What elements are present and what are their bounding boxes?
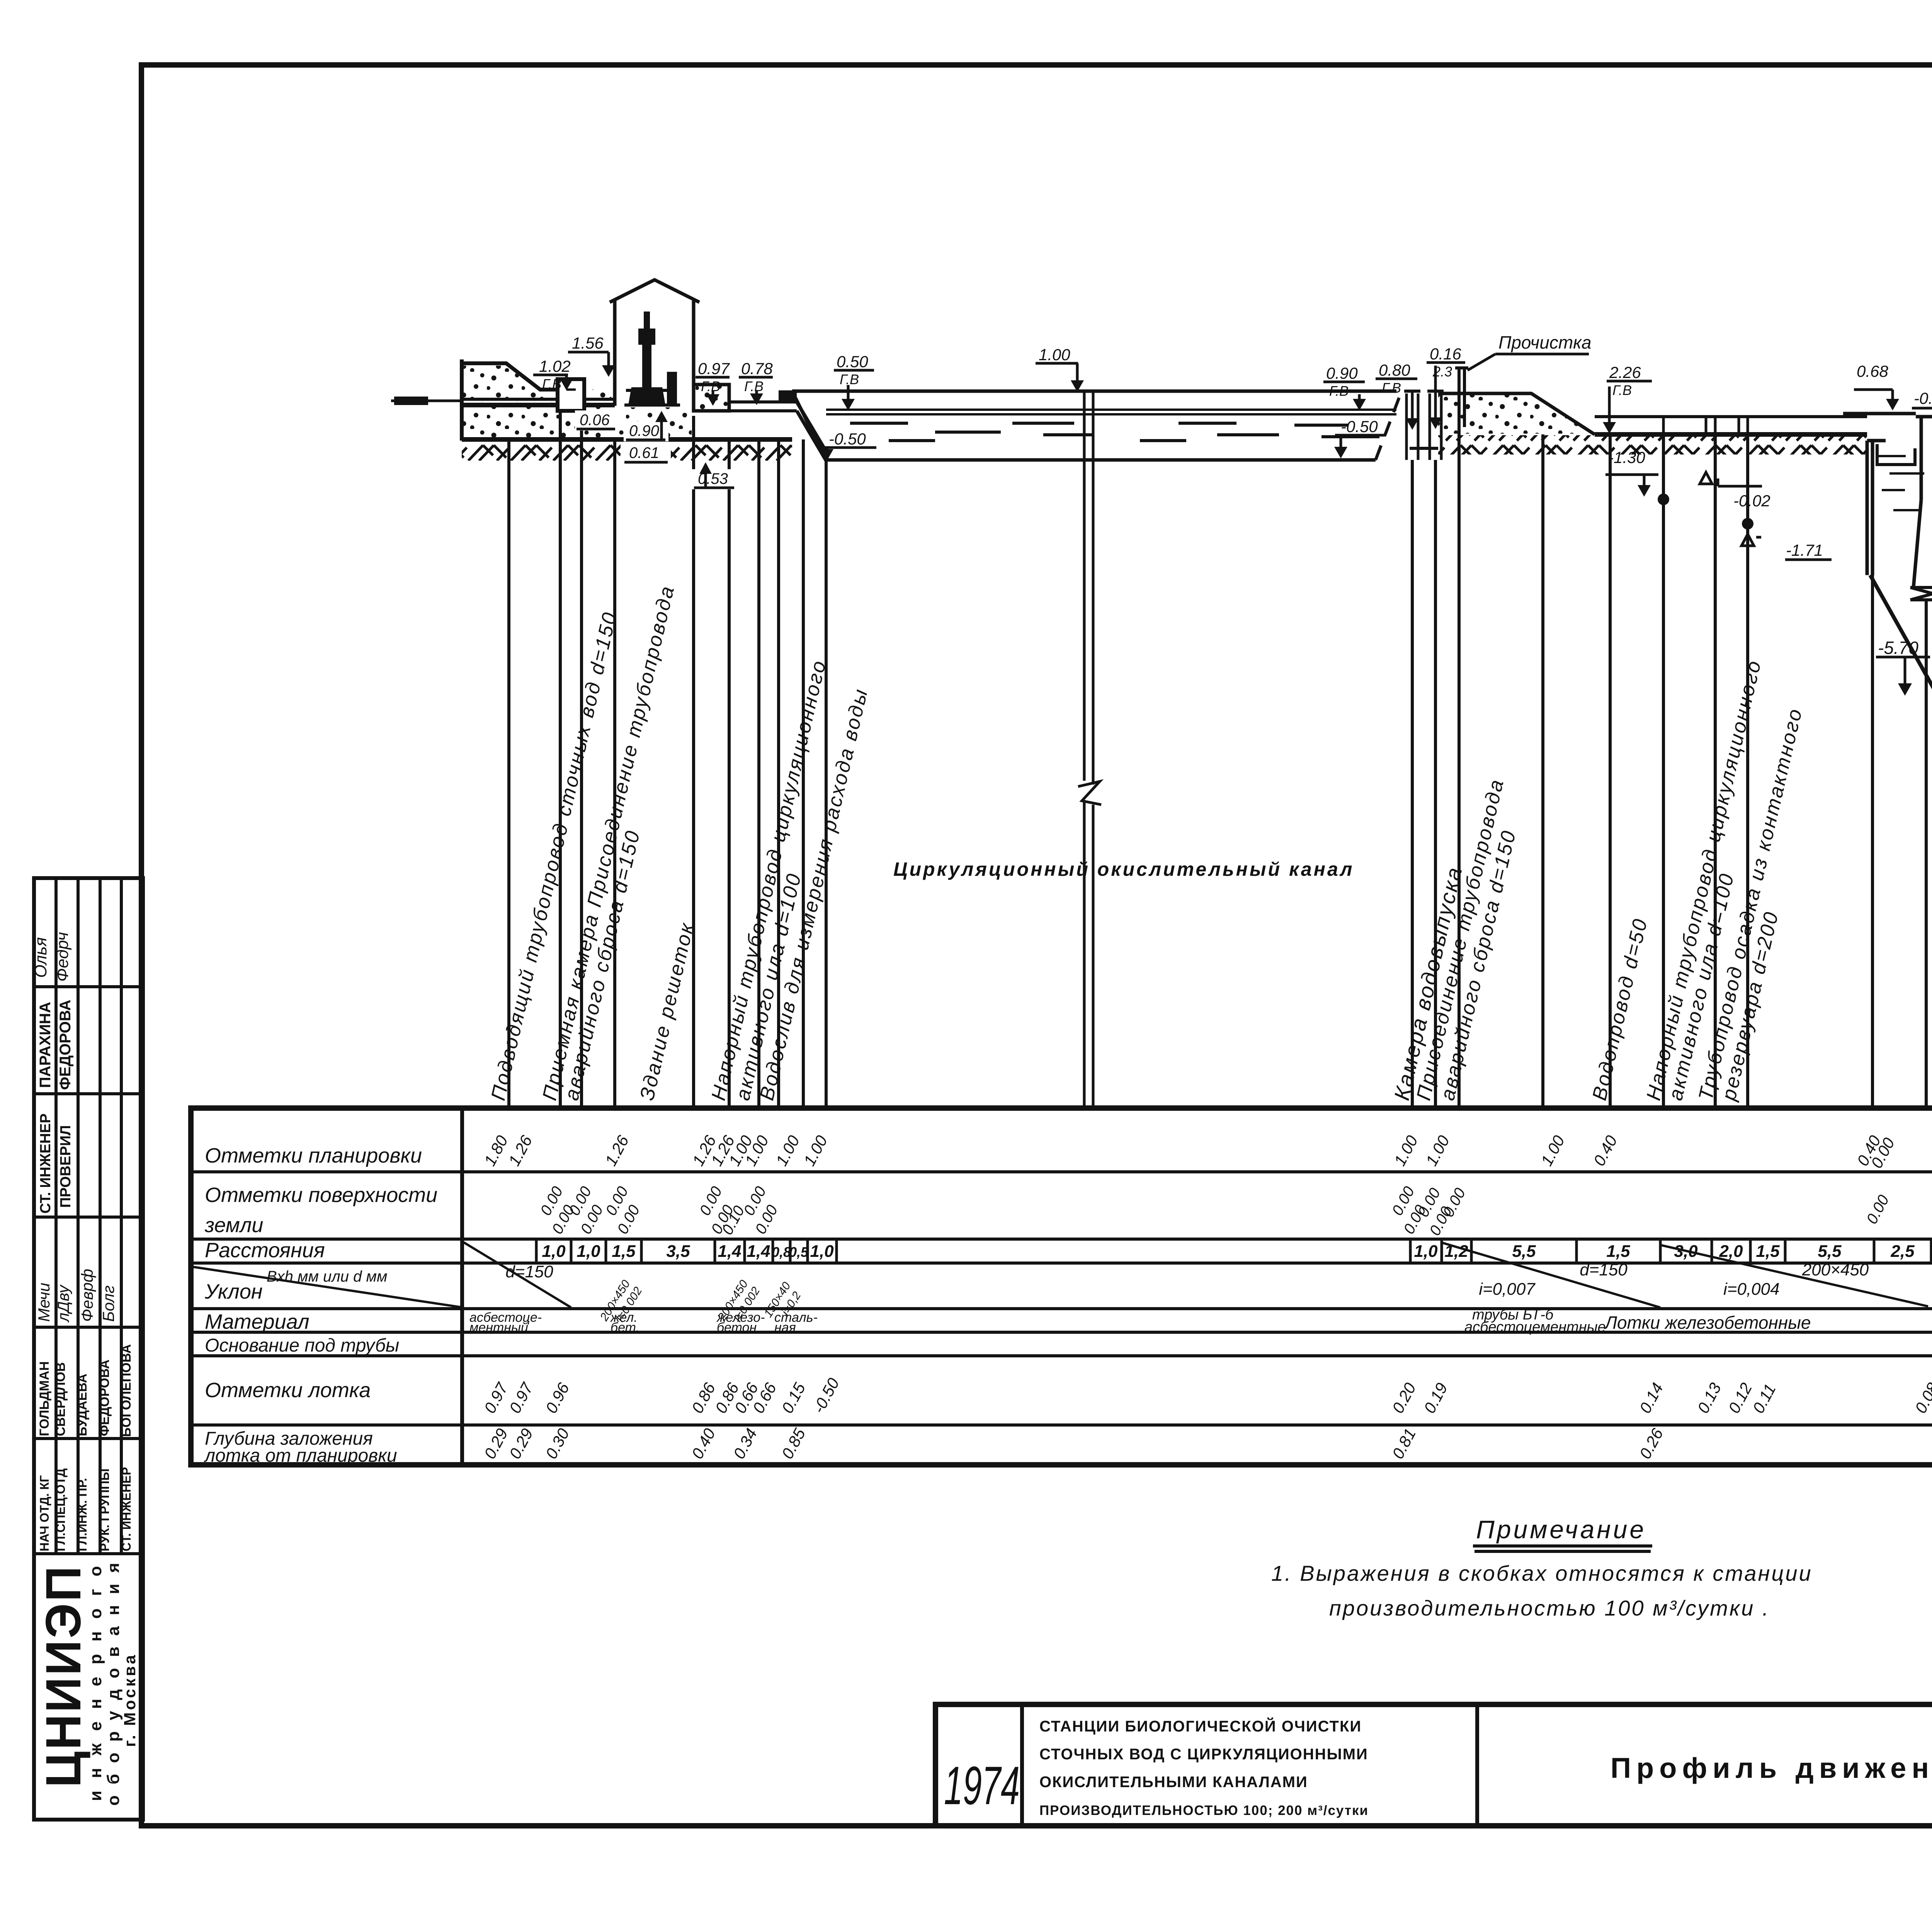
svg-text:НАЧ ОТД. КГ: НАЧ ОТД. КГ [37,1475,51,1551]
svg-text:0,5: 0,5 [789,1244,809,1260]
svg-text:1.02: 1.02 [539,357,571,375]
svg-text:0.29: 0.29 [505,1425,536,1462]
svg-text:земли: земли [204,1214,263,1237]
svg-text:-5.70: -5.70 [1878,638,1918,658]
svg-text:БОГОЛЕПОВА: БОГОЛЕПОВА [119,1344,134,1437]
svg-text:ГОЛЬДМАН: ГОЛЬДМАН [37,1361,52,1436]
svg-text:0.97: 0.97 [505,1379,537,1416]
svg-text:Отметки планировки: Отметки планировки [205,1144,422,1167]
svg-text:Федрч: Федрч [53,932,72,982]
svg-text:ФЕДОРОВА: ФЕДОРОВА [57,1000,74,1090]
svg-text:i=0,007: i=0,007 [1479,1280,1536,1299]
svg-text:Отметки лотка: Отметки лотка [205,1379,371,1402]
svg-text:1.00: 1.00 [1537,1132,1568,1169]
svg-text:d=150: d=150 [505,1262,553,1281]
svg-text:Г.В: Г.В [701,378,720,394]
svg-text:0.97: 0.97 [698,359,730,378]
svg-text:БУДАЕВА: БУДАЕВА [75,1374,90,1436]
svg-text:1.00: 1.00 [772,1132,803,1169]
svg-text:1.56: 1.56 [572,334,604,352]
svg-text:ПРОВЕРИЛ: ПРОВЕРИЛ [58,1125,74,1208]
svg-text:СТОЧНЫХ ВОД С ЦИРКУЛЯЦИОННЫ: СТОЧНЫХ ВОД С ЦИРКУЛЯЦИОННЫМИ [1039,1746,1368,1763]
svg-text:ГЛ.СПЕЦ.ОТД: ГЛ.СПЕЦ.ОТД [54,1468,68,1551]
svg-text:1.26: 1.26 [505,1132,536,1169]
svg-text:0.16: 0.16 [1430,345,1461,363]
svg-text:0.97: 0.97 [480,1379,512,1416]
svg-text:-0.50: -0.50 [829,430,866,448]
svg-text:ПРОИЗВОДИТЕЛЬНОСТЬЮ 100; 200: ПРОИЗВОДИТЕЛЬНОСТЬЮ 100; 200 м³/сутки [1039,1803,1369,1818]
svg-text:1.26: 1.26 [601,1132,632,1169]
svg-text:-0.50: -0.50 [809,1375,843,1416]
svg-text:Отметки поверхности: Отметки поверхности [205,1183,437,1207]
svg-text:Основание под трубы: Основание под трубы [205,1335,399,1356]
svg-text:0.40: 0.40 [688,1425,719,1462]
svg-text:Водопровод d=50: Водопровод d=50 [1588,916,1652,1103]
svg-text:ментный: ментный [469,1320,528,1335]
svg-text:0.61: 0.61 [629,444,659,461]
svg-text:3,5: 3,5 [666,1242,690,1261]
svg-text:-1.71: -1.71 [1786,541,1823,559]
svg-text:г. Москва: г. Москва [121,1653,139,1747]
svg-text:бетон: бетон [717,1320,757,1335]
svg-text:0.08: 0.08 [1911,1379,1932,1416]
svg-text:Г.В: Г.В [744,378,764,394]
svg-text:0.96: 0.96 [542,1379,573,1416]
svg-text:1.00: 1.00 [800,1132,831,1169]
svg-text:Циркуляционный окислительны: Циркуляционный окислительный канал [893,858,1354,880]
svg-text:Уклон: Уклон [204,1280,263,1303]
svg-text:Здание решеток: Здание решеток [636,920,699,1103]
svg-text:0.90: 0.90 [629,422,659,439]
svg-text:-1.30: -1.30 [1608,448,1645,466]
svg-text:1974: 1974 [944,1755,1020,1816]
svg-text:Расстояния: Расстояния [205,1239,325,1262]
svg-text:Материал: Материал [205,1310,310,1333]
svg-text:2,5: 2,5 [1890,1242,1915,1261]
svg-text:Прочистка: Прочистка [1498,332,1591,352]
svg-text:5,5: 5,5 [1818,1242,1842,1261]
svg-text:1,0: 1,0 [1414,1242,1438,1261]
svg-text:ПАРАХИНА: ПАРАХИНА [37,1002,54,1088]
svg-text:1.00: 1.00 [1422,1132,1453,1169]
svg-text:1.80: 1.80 [480,1132,511,1169]
svg-text:ная: ная [774,1320,796,1335]
svg-text:1,4: 1,4 [718,1242,741,1261]
svg-text:Г.В: Г.В [542,376,561,392]
svg-text:-0.02: -0.02 [1733,492,1770,510]
svg-text:0.90: 0.90 [1326,364,1358,382]
svg-text:1,0: 1,0 [542,1242,566,1261]
svg-text:производительностью 100 м³: производительностью 100 м³/сутки . [1329,1596,1770,1620]
svg-text:1,4: 1,4 [747,1242,770,1261]
svg-text:СТ. ИНЖЕНЕР: СТ. ИНЖЕНЕР [37,1113,54,1214]
svg-text:Примечание: Примечание [1476,1515,1646,1544]
svg-text:лДву: лДву [54,1284,72,1323]
svg-text:Болг: Болг [99,1285,117,1322]
svg-text:200×450: 200×450 [1802,1260,1869,1279]
svg-text:1,0: 1,0 [810,1242,834,1261]
svg-text:0.78: 0.78 [741,359,773,378]
svg-text:1,0: 1,0 [577,1242,600,1261]
svg-text:и н ж е н е р н о г о: и н ж е н е р н о г о [86,1562,105,1801]
svg-text:1,5: 1,5 [1606,1242,1630,1261]
svg-text:0.29: 0.29 [480,1425,511,1462]
svg-text:Олья: Олья [31,937,50,978]
svg-text:1.00: 1.00 [1390,1132,1421,1169]
svg-text:0.50: 0.50 [837,352,868,371]
svg-text:СТАНЦИИ БИОЛОГИЧЕСКОЙ ОЧИСТК: СТАНЦИИ БИОЛОГИЧЕСКОЙ ОЧИСТКИ [1039,1717,1362,1735]
svg-text:-0.12: -0.12 [1914,389,1932,407]
svg-text:о б о р у д о в а н и я: о б о р у д о в а н и я [104,1560,123,1806]
svg-text:лотка от планировки: лотка от планировки [204,1445,397,1466]
svg-text:0.06: 0.06 [580,412,610,429]
svg-text:i=0,004: i=0,004 [1723,1280,1780,1299]
svg-text:ФЕДОРОВА: ФЕДОРОВА [97,1360,112,1436]
svg-text:Г.В: Г.В [1612,382,1632,398]
svg-text:2,0: 2,0 [1719,1242,1743,1261]
svg-text:1,5: 1,5 [1756,1242,1780,1261]
svg-text:Мечи: Мечи [35,1283,53,1322]
svg-text:-0.50: -0.50 [1341,417,1378,436]
svg-text:0.80: 0.80 [1379,361,1410,379]
svg-text:бет.: бет. [611,1320,639,1335]
svg-text:0.86: 0.86 [688,1379,719,1416]
svg-text:1.00: 1.00 [1039,346,1070,364]
svg-text:d=150: d=150 [1580,1260,1628,1279]
svg-text:0.34: 0.34 [730,1425,760,1462]
svg-text:Г.В: Г.В [1382,380,1401,396]
svg-text:Г.В: Г.В [840,371,859,387]
svg-text:СВЕРДЛОВ: СВЕРДЛОВ [53,1362,68,1436]
svg-text:ЦНИИЭП: ЦНИИЭП [36,1565,91,1788]
svg-text:0.00: 0.00 [1863,1192,1892,1227]
svg-text:0.15: 0.15 [778,1379,809,1416]
svg-text:РУК. ГРУППЫ: РУК. ГРУППЫ [98,1469,112,1551]
svg-text:Вxh мм или d мм: Вxh мм или d мм [267,1268,387,1285]
svg-text:1. Выражения в скобках: 1. Выражения в скобках относятся к станц… [1271,1561,1813,1585]
svg-text:0.81: 0.81 [1388,1425,1419,1462]
svg-text:0.20: 0.20 [1388,1379,1419,1416]
svg-text:1,5: 1,5 [612,1242,636,1261]
svg-text:0.40: 0.40 [1590,1132,1621,1169]
svg-text:ОКИСЛИТЕЛЬНЫМИ КАНАЛАМИ: ОКИСЛИТЕЛЬНЫМИ КАНАЛАМИ [1039,1774,1308,1791]
svg-text:0.85: 0.85 [778,1425,809,1462]
svg-text:Феврф: Феврф [78,1269,96,1322]
svg-text:5,5: 5,5 [1512,1242,1536,1261]
svg-text:асбестоцементные: асбестоцементные [1464,1319,1606,1335]
svg-text:0,8: 0,8 [772,1244,791,1260]
svg-text:2.26: 2.26 [1609,363,1641,381]
svg-text:0.19: 0.19 [1420,1380,1451,1416]
svg-text:ГЛ.ИНЖ. ПР.: ГЛ.ИНЖ. ПР. [75,1478,89,1551]
svg-text:Г.В: Г.В [1329,383,1349,399]
svg-text:0.30: 0.30 [542,1425,573,1462]
svg-text:СТ. ИНЖЕНЕР: СТ. ИНЖЕНЕР [119,1467,133,1551]
svg-text:Профиль движения воды: Профиль движения воды [1611,1752,1932,1784]
svg-text:0.68: 0.68 [1857,362,1888,380]
svg-text:0.12: 0.12 [1725,1380,1755,1416]
svg-text:0.13: 0.13 [1694,1380,1725,1416]
svg-text:0.11: 0.11 [1749,1381,1779,1416]
svg-text:0.14: 0.14 [1636,1380,1667,1416]
svg-text:0.26: 0.26 [1636,1425,1667,1462]
svg-text:Лотки железобетонные: Лотки железобетонные [1604,1313,1811,1333]
